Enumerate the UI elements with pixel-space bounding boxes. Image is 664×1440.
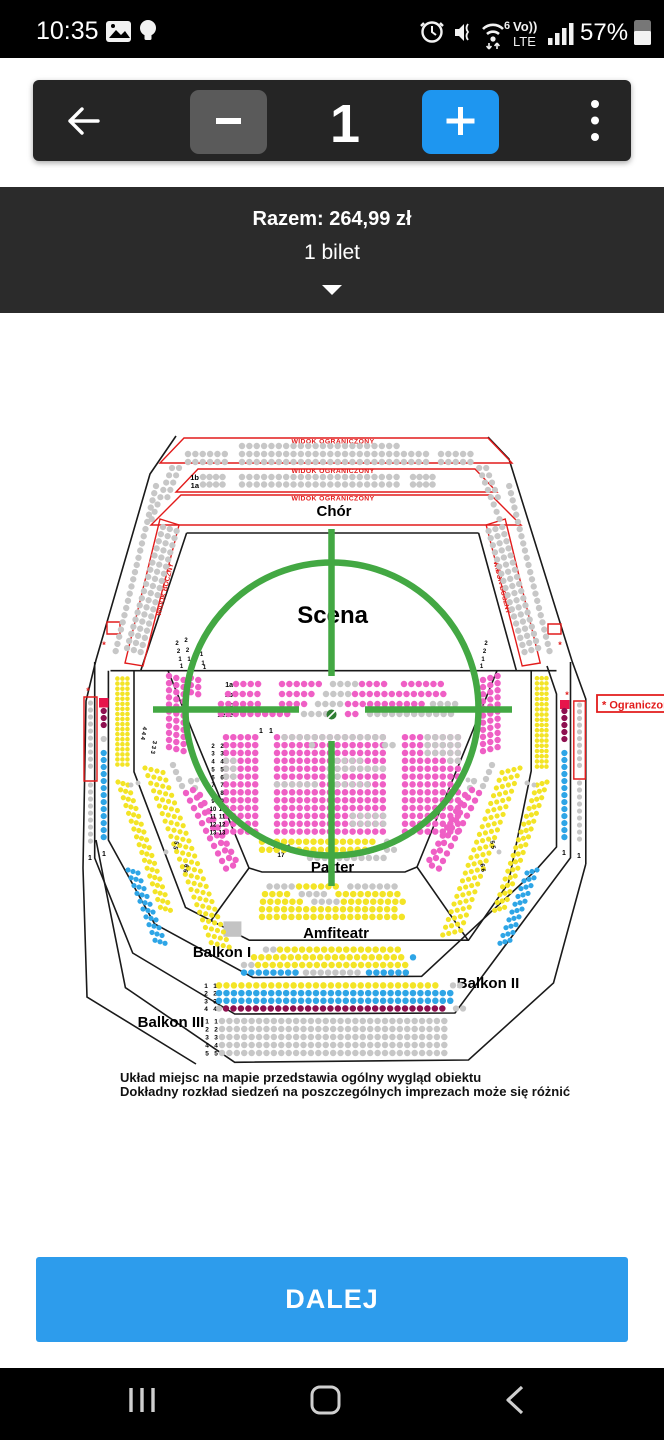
svg-text:2: 2 [204,991,208,998]
svg-text:1: 1 [200,652,204,658]
svg-text:1: 1 [180,664,184,670]
svg-text:11: 11 [219,815,226,821]
svg-text:LTE: LTE [513,34,536,49]
svg-text:4: 4 [205,1043,209,1050]
svg-text:1: 1 [178,657,182,663]
svg-text:1: 1 [204,983,208,990]
svg-text:4: 4 [214,1043,218,1050]
svg-text:4: 4 [204,1006,208,1013]
svg-text:6 6: 6 6 [478,863,485,873]
svg-text:1a: 1a [225,682,233,689]
svg-text:12: 12 [219,823,226,829]
svg-text:2: 2 [211,744,215,750]
svg-text:1: 1 [330,94,360,154]
svg-text:Chór: Chór [317,503,352,520]
svg-text:1: 1 [102,851,106,858]
svg-text:Balkon III: Balkon III [138,1014,205,1031]
svg-text:* Ograniczony: * Ograniczony [602,700,664,712]
svg-text:1: 1 [88,855,92,862]
svg-text:*: * [565,690,569,700]
svg-text:2: 2 [186,648,190,654]
svg-text:3: 3 [211,752,215,758]
svg-text:10: 10 [210,807,217,813]
svg-text:3 3 3: 3 3 3 [149,740,157,755]
svg-text:17: 17 [277,852,285,859]
svg-text:1: 1 [480,664,484,670]
svg-text:1: 1 [562,850,566,857]
svg-text:2: 2 [175,641,179,647]
svg-text:WIDOK OGRANICZONY: WIDOK OGRANICZONY [291,495,374,502]
svg-text:Amfiteatr: Amfiteatr [303,925,369,942]
svg-text:1: 1 [205,1019,209,1026]
svg-text:13: 13 [210,830,217,836]
svg-text:*: * [86,686,90,696]
svg-text:*: * [102,640,106,650]
svg-text:1: 1 [481,657,485,663]
svg-text:3: 3 [205,1035,209,1042]
svg-text:Vo)): Vo)) [513,19,537,34]
svg-text:*: * [558,640,562,650]
svg-text:1: 1 [214,1019,218,1026]
svg-text:1: 1 [259,728,263,735]
svg-text:Balkon II: Balkon II [457,975,520,992]
svg-text:1a: 1a [191,481,200,490]
svg-text:2: 2 [214,1027,218,1034]
svg-text:12: 12 [210,823,217,829]
svg-text:WIDOK OGRANICZONY: WIDOK OGRANICZONY [291,468,374,475]
svg-text:5: 5 [211,768,215,774]
svg-text:3: 3 [204,998,208,1005]
svg-text:11: 11 [210,815,217,821]
svg-text:5: 5 [214,1051,218,1058]
svg-text:6: 6 [211,775,215,781]
svg-text:2: 2 [184,638,188,644]
svg-text:6: 6 [504,20,510,32]
svg-text:4: 4 [211,760,215,766]
svg-text:3: 3 [214,1035,218,1042]
svg-text:5 5: 5 5 [488,840,495,850]
svg-text:2: 2 [484,641,488,647]
svg-text:2: 2 [205,1027,209,1034]
svg-text:1: 1 [269,728,273,735]
svg-text:1: 1 [577,853,581,860]
svg-text:5: 5 [205,1051,209,1058]
svg-text:13: 13 [219,830,226,836]
svg-text:2: 2 [483,649,487,655]
svg-text:4 4 4: 4 4 4 [139,726,147,741]
svg-text:2: 2 [177,649,181,655]
